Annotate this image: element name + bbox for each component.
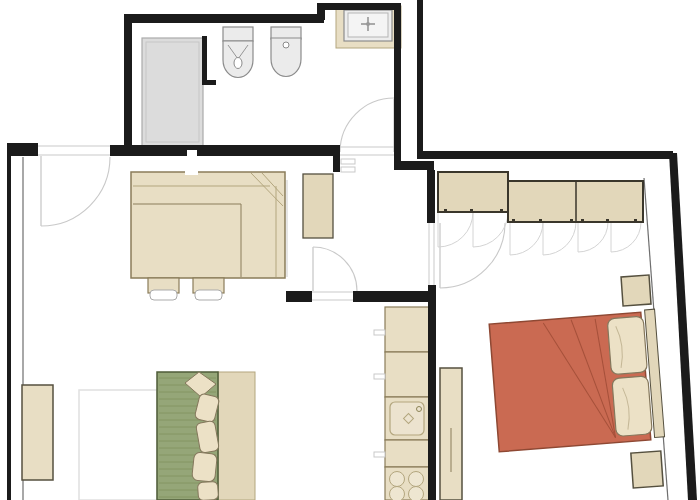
stool-back [195, 290, 222, 300]
tall-cabinet [440, 368, 462, 500]
floor-plan-svg [0, 0, 700, 500]
nightstand-top [621, 275, 651, 306]
bathroom-door [340, 98, 394, 172]
stove-burner [390, 487, 405, 500]
wardrobe-door-arc [438, 212, 473, 247]
wall-sink-top [317, 3, 401, 10]
daybed-pillow [192, 452, 218, 482]
hinge-tick [581, 219, 584, 223]
stool-right [193, 278, 224, 300]
sofa [131, 169, 287, 278]
wall-band-mid [110, 145, 340, 156]
toilet [223, 27, 253, 77]
sink-faucet-dot [366, 22, 370, 26]
stove-burner [409, 487, 424, 500]
wardrobe-left [438, 172, 508, 212]
wall-band-bottom-right [353, 291, 435, 302]
wardrobe-right [508, 181, 643, 222]
stove-burner [390, 472, 405, 487]
shower-tray [142, 38, 203, 146]
stool-left [148, 278, 179, 300]
wall-bedroom-top [417, 151, 673, 159]
wardrobe-door-arc [578, 222, 608, 252]
wall-outer-left [7, 143, 11, 500]
hinge-tick [512, 219, 515, 223]
sofa-top-notch [185, 169, 198, 175]
jamb-mark [341, 159, 355, 164]
wall-jog [394, 161, 434, 170]
hall-cabinet [303, 174, 333, 238]
entry-door [38, 146, 110, 226]
hinge-tick [539, 219, 542, 223]
bathroom-sink [336, 6, 401, 48]
shower [142, 38, 203, 146]
wall-shower-stub-h [202, 80, 216, 85]
wall-bath-right [394, 5, 401, 167]
counter-unit [385, 307, 430, 352]
bidet-faucet [283, 42, 289, 48]
wall-kitchen-right [428, 285, 436, 500]
wall-band-left [7, 143, 38, 156]
hinge-tick [444, 209, 447, 213]
bedroom-door [429, 223, 505, 288]
nightstand-bottom [631, 451, 663, 488]
cabinet-door-mark [374, 374, 385, 379]
toilet-opening [234, 58, 242, 69]
door-swing-arc [340, 98, 394, 152]
wardrobe-door-arc [543, 222, 576, 255]
daybed-bench [218, 372, 255, 500]
wall-bath-top [124, 14, 324, 23]
wall-hall-stub [333, 145, 340, 172]
daybed-pillow [197, 481, 218, 500]
toilet-tank [223, 27, 253, 41]
door-swing-arc [313, 247, 357, 291]
cabinet-door-mark [374, 452, 385, 457]
stove-burner [409, 472, 424, 487]
wall-east-slanted [669, 153, 697, 500]
stool-back [150, 290, 177, 300]
counter-unit [385, 352, 430, 397]
hinge-tick [634, 219, 637, 223]
wall-outer-topright-vert [417, 0, 423, 157]
wardrobe-door-arc [611, 222, 641, 252]
radiator [22, 385, 53, 480]
rug [79, 390, 157, 500]
green-daybed [157, 372, 220, 500]
bed-pillow [607, 316, 647, 375]
sofa-body [131, 172, 285, 278]
jamb-mark [341, 167, 355, 172]
hinge-tick [570, 219, 573, 223]
cabinet-door-mark [374, 330, 385, 335]
door-swing-arc [41, 157, 110, 226]
kitchen-door [312, 247, 357, 300]
bidet-back [271, 27, 301, 39]
hinge-tick [606, 219, 609, 223]
counter-unit [385, 440, 430, 467]
double-bed [489, 309, 665, 452]
wall-bedroom-left-upper [427, 170, 435, 223]
kitchen-counter [374, 307, 430, 500]
wall-shower-stub-v [202, 36, 207, 84]
wall-band-bottom-left [286, 291, 312, 302]
wardrobe-door-arc [510, 222, 543, 255]
hinge-tick [470, 209, 473, 213]
bed-pillow [612, 376, 652, 437]
hinge-tick [500, 209, 503, 213]
wall-bath-left [124, 14, 132, 149]
wall-niche-notch [187, 150, 197, 157]
bidet [271, 27, 301, 77]
floor-plan [0, 0, 700, 500]
